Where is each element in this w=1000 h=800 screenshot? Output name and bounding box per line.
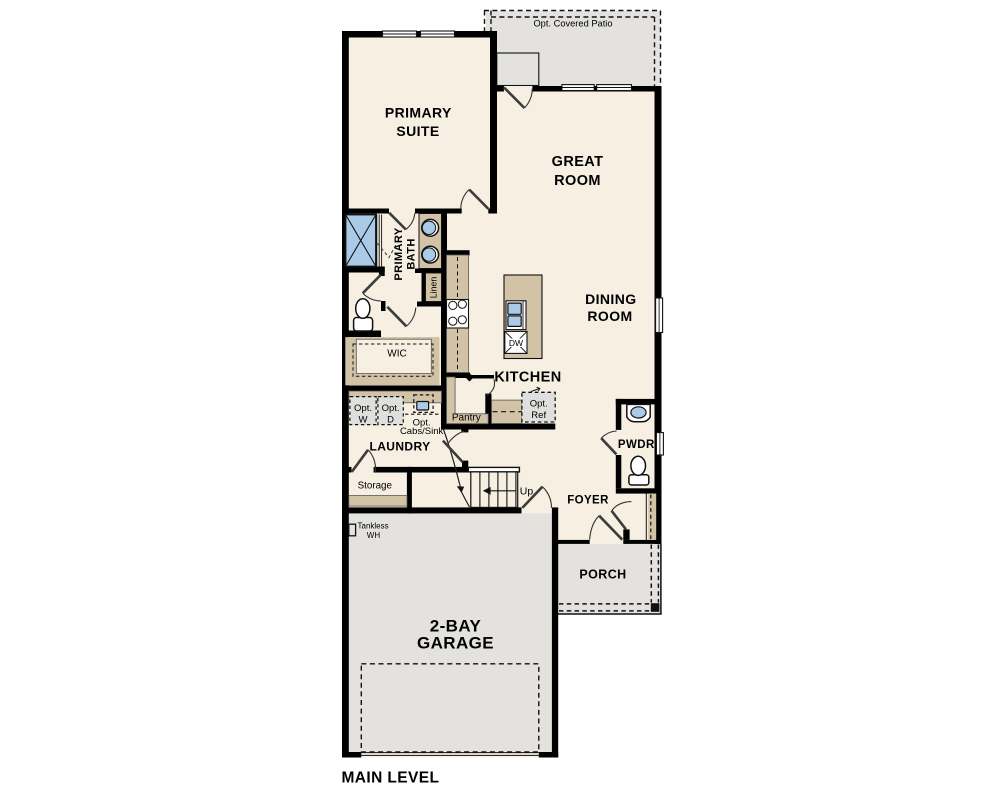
svg-text:KITCHEN: KITCHEN [494,370,561,386]
svg-text:Storage: Storage [358,481,393,492]
svg-text:ROOM: ROOM [587,308,632,324]
svg-text:LAUNDRY: LAUNDRY [369,440,430,454]
svg-text:GREAT: GREAT [552,154,604,170]
svg-text:Opt.: Opt. [382,403,400,414]
svg-text:Pantry: Pantry [452,412,481,423]
svg-text:WIC: WIC [387,348,406,359]
svg-text:MAIN LEVEL: MAIN LEVEL [342,770,440,787]
svg-text:DW: DW [509,338,523,348]
svg-text:Opt. Covered Patio: Opt. Covered Patio [533,19,612,29]
svg-text:GARAGE: GARAGE [417,633,494,652]
svg-text:D: D [387,414,394,425]
svg-text:W: W [359,414,368,425]
svg-text:SUITE: SUITE [396,123,439,139]
svg-text:Linen: Linen [429,277,439,299]
svg-text:Tankless: Tankless [358,522,389,531]
svg-text:WH: WH [367,531,381,540]
svg-text:Opt.: Opt. [530,399,548,410]
svg-text:BATH: BATH [406,238,418,269]
svg-text:PRIMARY: PRIMARY [385,105,452,121]
svg-text:FOYER: FOYER [567,495,609,507]
svg-text:DINING: DINING [585,291,636,307]
svg-text:Opt.: Opt. [354,403,372,414]
svg-text:PORCH: PORCH [579,568,626,582]
svg-text:Cabs/Sink: Cabs/Sink [400,426,444,437]
svg-text:Ref: Ref [531,410,546,421]
svg-text:Up: Up [520,486,534,498]
svg-text:PWDR: PWDR [618,439,655,451]
svg-text:PRIMARY: PRIMARY [393,227,405,280]
svg-text:ROOM: ROOM [554,173,601,189]
